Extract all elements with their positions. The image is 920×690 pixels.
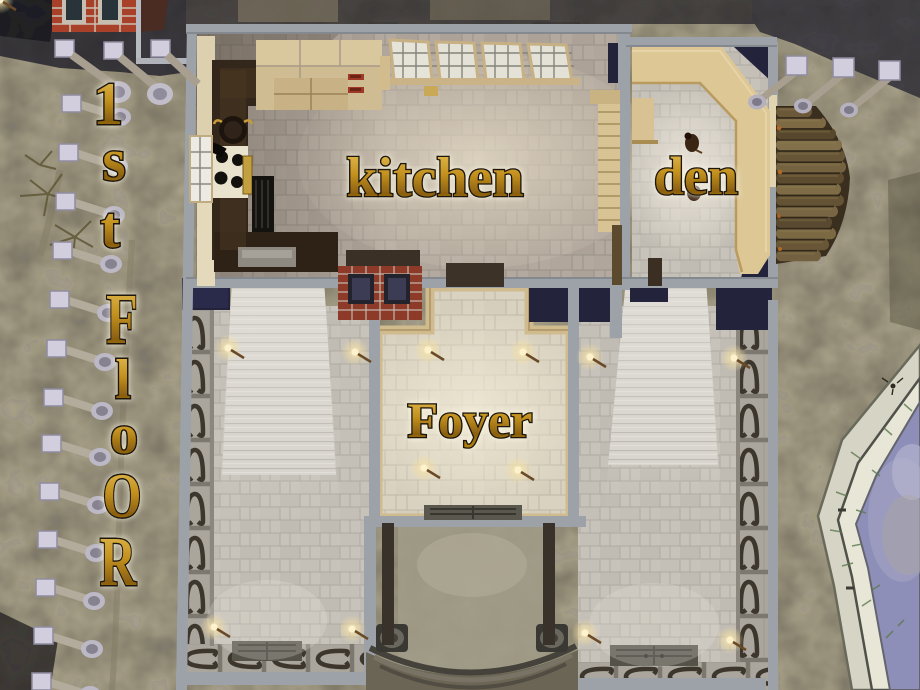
svg-text:l: l [115,349,131,411]
svg-text:t: t [100,195,120,260]
svg-text:Foyer: Foyer [408,392,533,448]
svg-text:den: den [654,146,738,206]
svg-text:kitchen: kitchen [346,147,523,209]
svg-text:O: O [103,461,142,531]
svg-text:s: s [102,127,125,193]
svg-text:R: R [100,524,137,601]
svg-text:F: F [106,279,138,359]
svg-text:o: o [110,404,138,466]
